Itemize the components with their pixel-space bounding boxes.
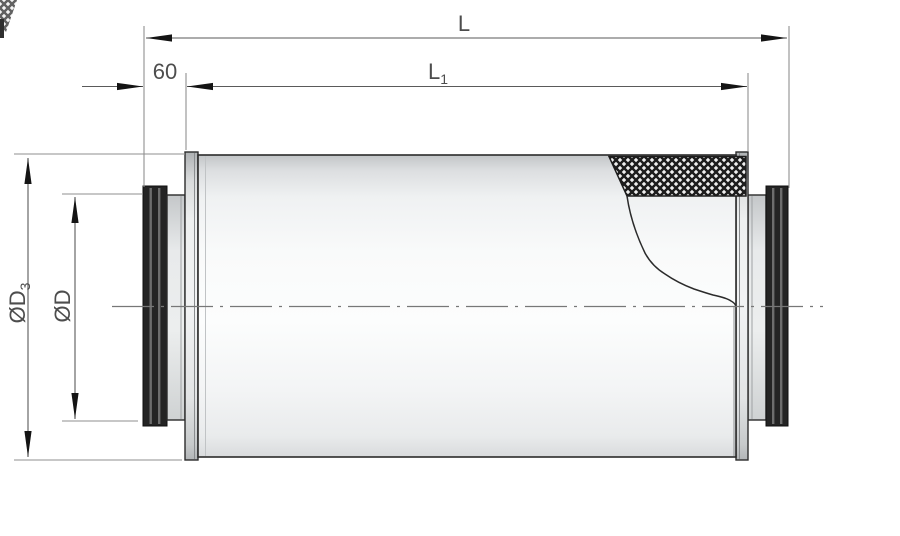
- label-casing-length: L1: [428, 59, 448, 87]
- dim-outer-diameter: ØD3: [5, 158, 33, 457]
- label-spigot-length: 60: [153, 59, 177, 84]
- dim-duct-diameter: ØD: [50, 197, 79, 419]
- label-outer-diameter: ØD3: [5, 282, 33, 323]
- silencer-technical-drawing: L L1 60 ØD3 ØD: [0, 0, 900, 536]
- label-overall-length: L: [458, 11, 470, 36]
- dim-casing-length: L1: [187, 59, 747, 90]
- right-spigot-collar: [748, 195, 766, 420]
- label-duct-diameter: ØD: [50, 290, 75, 323]
- dim-overall-length: L: [146, 11, 787, 42]
- left-spigot-collar: [167, 195, 185, 420]
- corner-artifact: [0, 0, 17, 38]
- insulation-hatch: [609, 157, 746, 197]
- dim-spigot-length: 60: [82, 59, 177, 90]
- drawing-canvas: L L1 60 ØD3 ØD: [0, 0, 900, 536]
